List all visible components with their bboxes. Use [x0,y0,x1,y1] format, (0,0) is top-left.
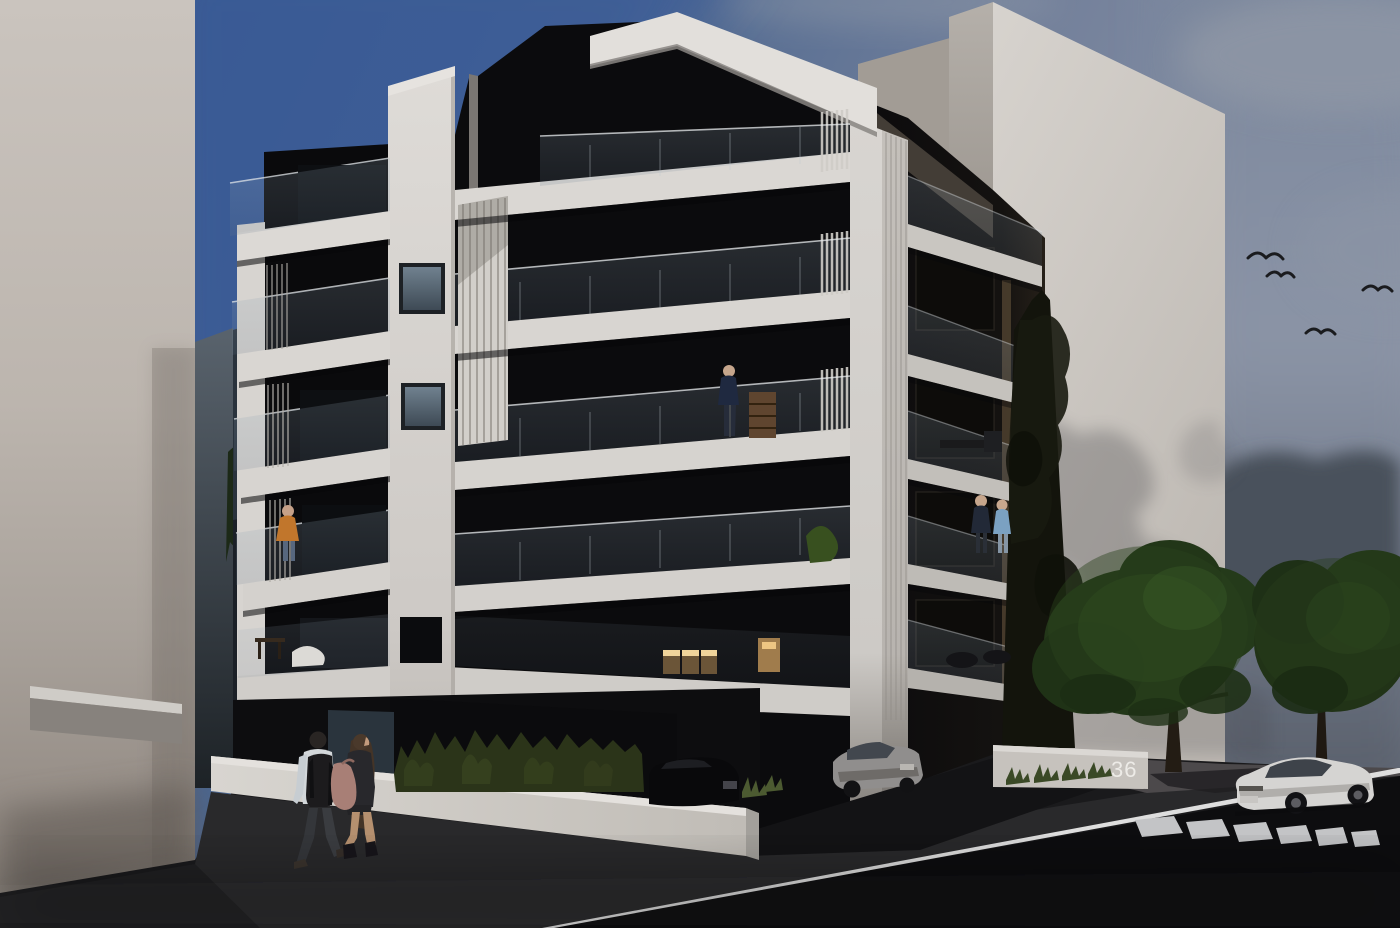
svg-text:36: 36 [1111,757,1137,782]
